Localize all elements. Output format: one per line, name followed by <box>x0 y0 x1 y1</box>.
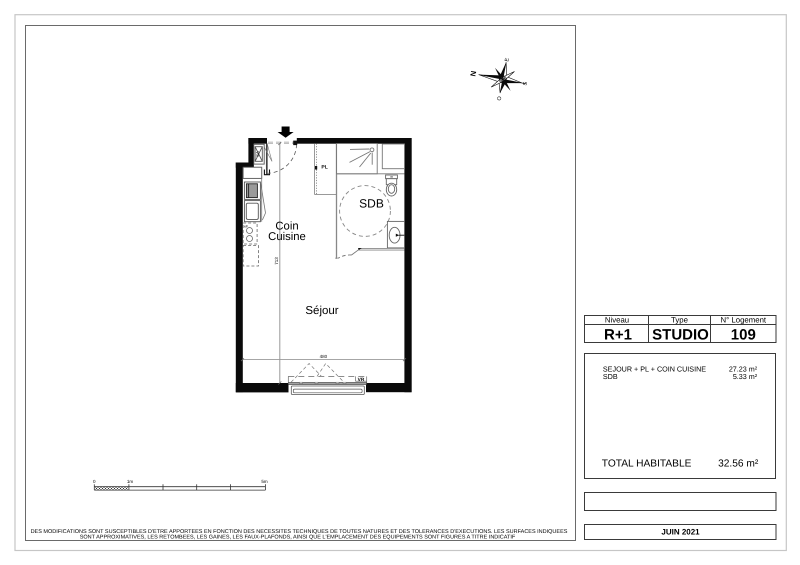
svg-text:TOTAL HABITABLE: TOTAL HABITABLE <box>602 459 692 470</box>
svg-text:SEJOUR + PL + COIN CUISINE: SEJOUR + PL + COIN CUISINE <box>603 364 706 373</box>
svg-text:VR: VR <box>358 377 365 383</box>
svg-text:1m: 1m <box>127 479 134 484</box>
svg-text:5m: 5m <box>261 479 268 484</box>
svg-text:PL: PL <box>321 165 327 171</box>
svg-text:32.56 m²: 32.56 m² <box>718 459 759 470</box>
svg-text:109: 109 <box>731 326 756 343</box>
svg-text:JUIN 2021: JUIN 2021 <box>661 528 700 537</box>
svg-text:SA: SA <box>255 151 260 157</box>
svg-text:SDB: SDB <box>359 197 384 211</box>
svg-text:SONT APPROXIMATIVES, LES RETOM: SONT APPROXIMATIVES, LES RETOMBEES, LES … <box>80 534 516 540</box>
svg-text:713: 713 <box>274 257 279 265</box>
svg-text:Type: Type <box>671 316 688 325</box>
svg-text:N° Logement: N° Logement <box>721 316 767 325</box>
svg-text:eF: eF <box>244 225 248 229</box>
svg-text:5.33 m²: 5.33 m² <box>733 372 758 381</box>
svg-text:STUDIO: STUDIO <box>652 326 709 343</box>
svg-text:Séjour: Séjour <box>305 305 338 317</box>
svg-text:Niveau: Niveau <box>605 316 629 325</box>
svg-text:R+1: R+1 <box>604 326 632 343</box>
svg-text:Cuisine: Cuisine <box>268 231 306 243</box>
svg-text:480: 480 <box>320 354 328 359</box>
svg-text:SDB: SDB <box>603 372 618 381</box>
